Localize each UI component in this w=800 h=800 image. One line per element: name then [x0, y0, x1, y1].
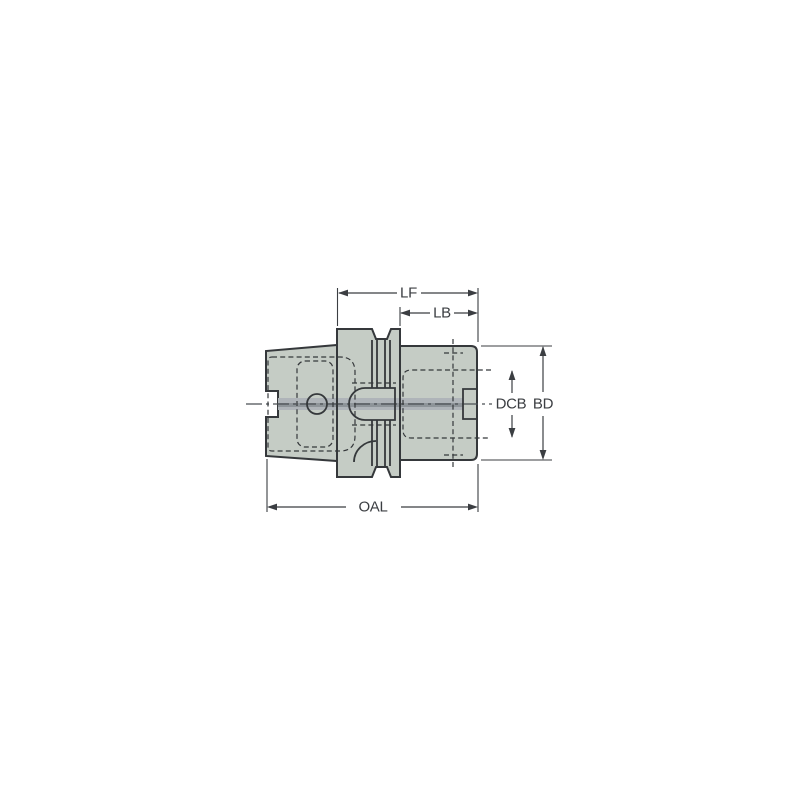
dim-lf: LF [338, 285, 478, 302]
dim-lb-arrow-left [400, 310, 410, 317]
dim-label-oal: OAL [358, 499, 387, 516]
dim-label-lb: LB [433, 305, 451, 322]
dim-lb: LB [400, 305, 478, 322]
dim-label-lf: LF [400, 285, 417, 302]
technical-drawing: LF LB DCB [0, 0, 800, 800]
dim-lf-arrow-left [338, 290, 348, 297]
dim-lf-arrow-right [468, 290, 478, 297]
drawing-canvas: LF LB DCB [0, 0, 800, 800]
dim-label-dcb: DCB [496, 396, 527, 413]
dim-oal-arrow-left [267, 504, 277, 511]
dim-bd-arrow-top [540, 346, 547, 356]
dim-lb-arrow-right [468, 310, 478, 317]
dim-dcb-arrow-top [509, 370, 516, 380]
dim-bd: BD [533, 346, 554, 460]
dim-oal: OAL [267, 499, 478, 516]
dim-label-bd: BD [533, 396, 554, 413]
dim-dcb: DCB [496, 370, 527, 438]
dim-oal-arrow-right [468, 504, 478, 511]
dim-bd-arrow-bottom [540, 450, 547, 460]
dim-dcb-arrow-bottom [509, 428, 516, 438]
